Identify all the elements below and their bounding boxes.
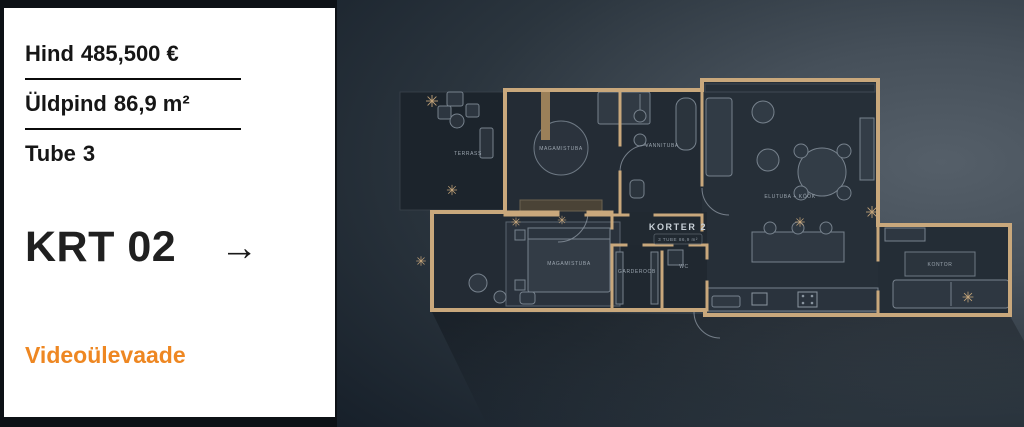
apartment-link[interactable]: KRT 02 → [25, 223, 335, 272]
spec-price: Hind485,500 € [25, 42, 335, 65]
plan-subtitle: 3 TUBE 86,9 m² [658, 237, 698, 242]
price-label: Hind [25, 41, 74, 66]
floorplan-image[interactable]: TERRASS MAGAMISTUBA VANNITUBA ELUTUBA + … [337, 0, 1024, 427]
spec-rooms: Tube3 [25, 142, 335, 165]
video-overview-link[interactable]: Videoülevaade [25, 342, 186, 369]
room-label-elutuba: ELUTUBA + KÖÖK [764, 193, 815, 200]
room-label-garderoob: GARDEROOB [618, 269, 656, 275]
info-card: Hind485,500 € Üldpind86,9 m² Tube3 KRT 0… [4, 8, 335, 417]
price-value: 485,500 € [81, 41, 179, 66]
rooms-value: 3 [83, 141, 95, 166]
room-label-magamistuba-2: MAGAMISTUBA [547, 261, 591, 267]
area-value: 86,9 m² [114, 91, 190, 116]
floorplan-svg: TERRASS MAGAMISTUBA VANNITUBA ELUTUBA + … [337, 0, 1024, 427]
divider [25, 78, 241, 80]
room-label-wc: WC [679, 264, 689, 270]
room-label-terrass: TERRASS [454, 151, 482, 157]
apartment-title: KRT 02 [25, 223, 176, 272]
room-label-magamistuba-1: MAGAMISTUBA [539, 146, 583, 152]
area-label: Üldpind [25, 91, 107, 116]
room-label-kontor: KONTOR [928, 262, 953, 268]
spec-area: Üldpind86,9 m² [25, 92, 335, 115]
plan-title: KORTER 2 [649, 222, 707, 232]
listing-screenshot: Hind485,500 € Üldpind86,9 m² Tube3 KRT 0… [0, 0, 1024, 427]
arrow-right-icon: → [220, 229, 258, 267]
divider [25, 128, 241, 130]
room-label-vannituba: VANNITUBA [645, 143, 679, 149]
plan-shadow [432, 312, 1024, 427]
rooms-label: Tube [25, 141, 76, 166]
